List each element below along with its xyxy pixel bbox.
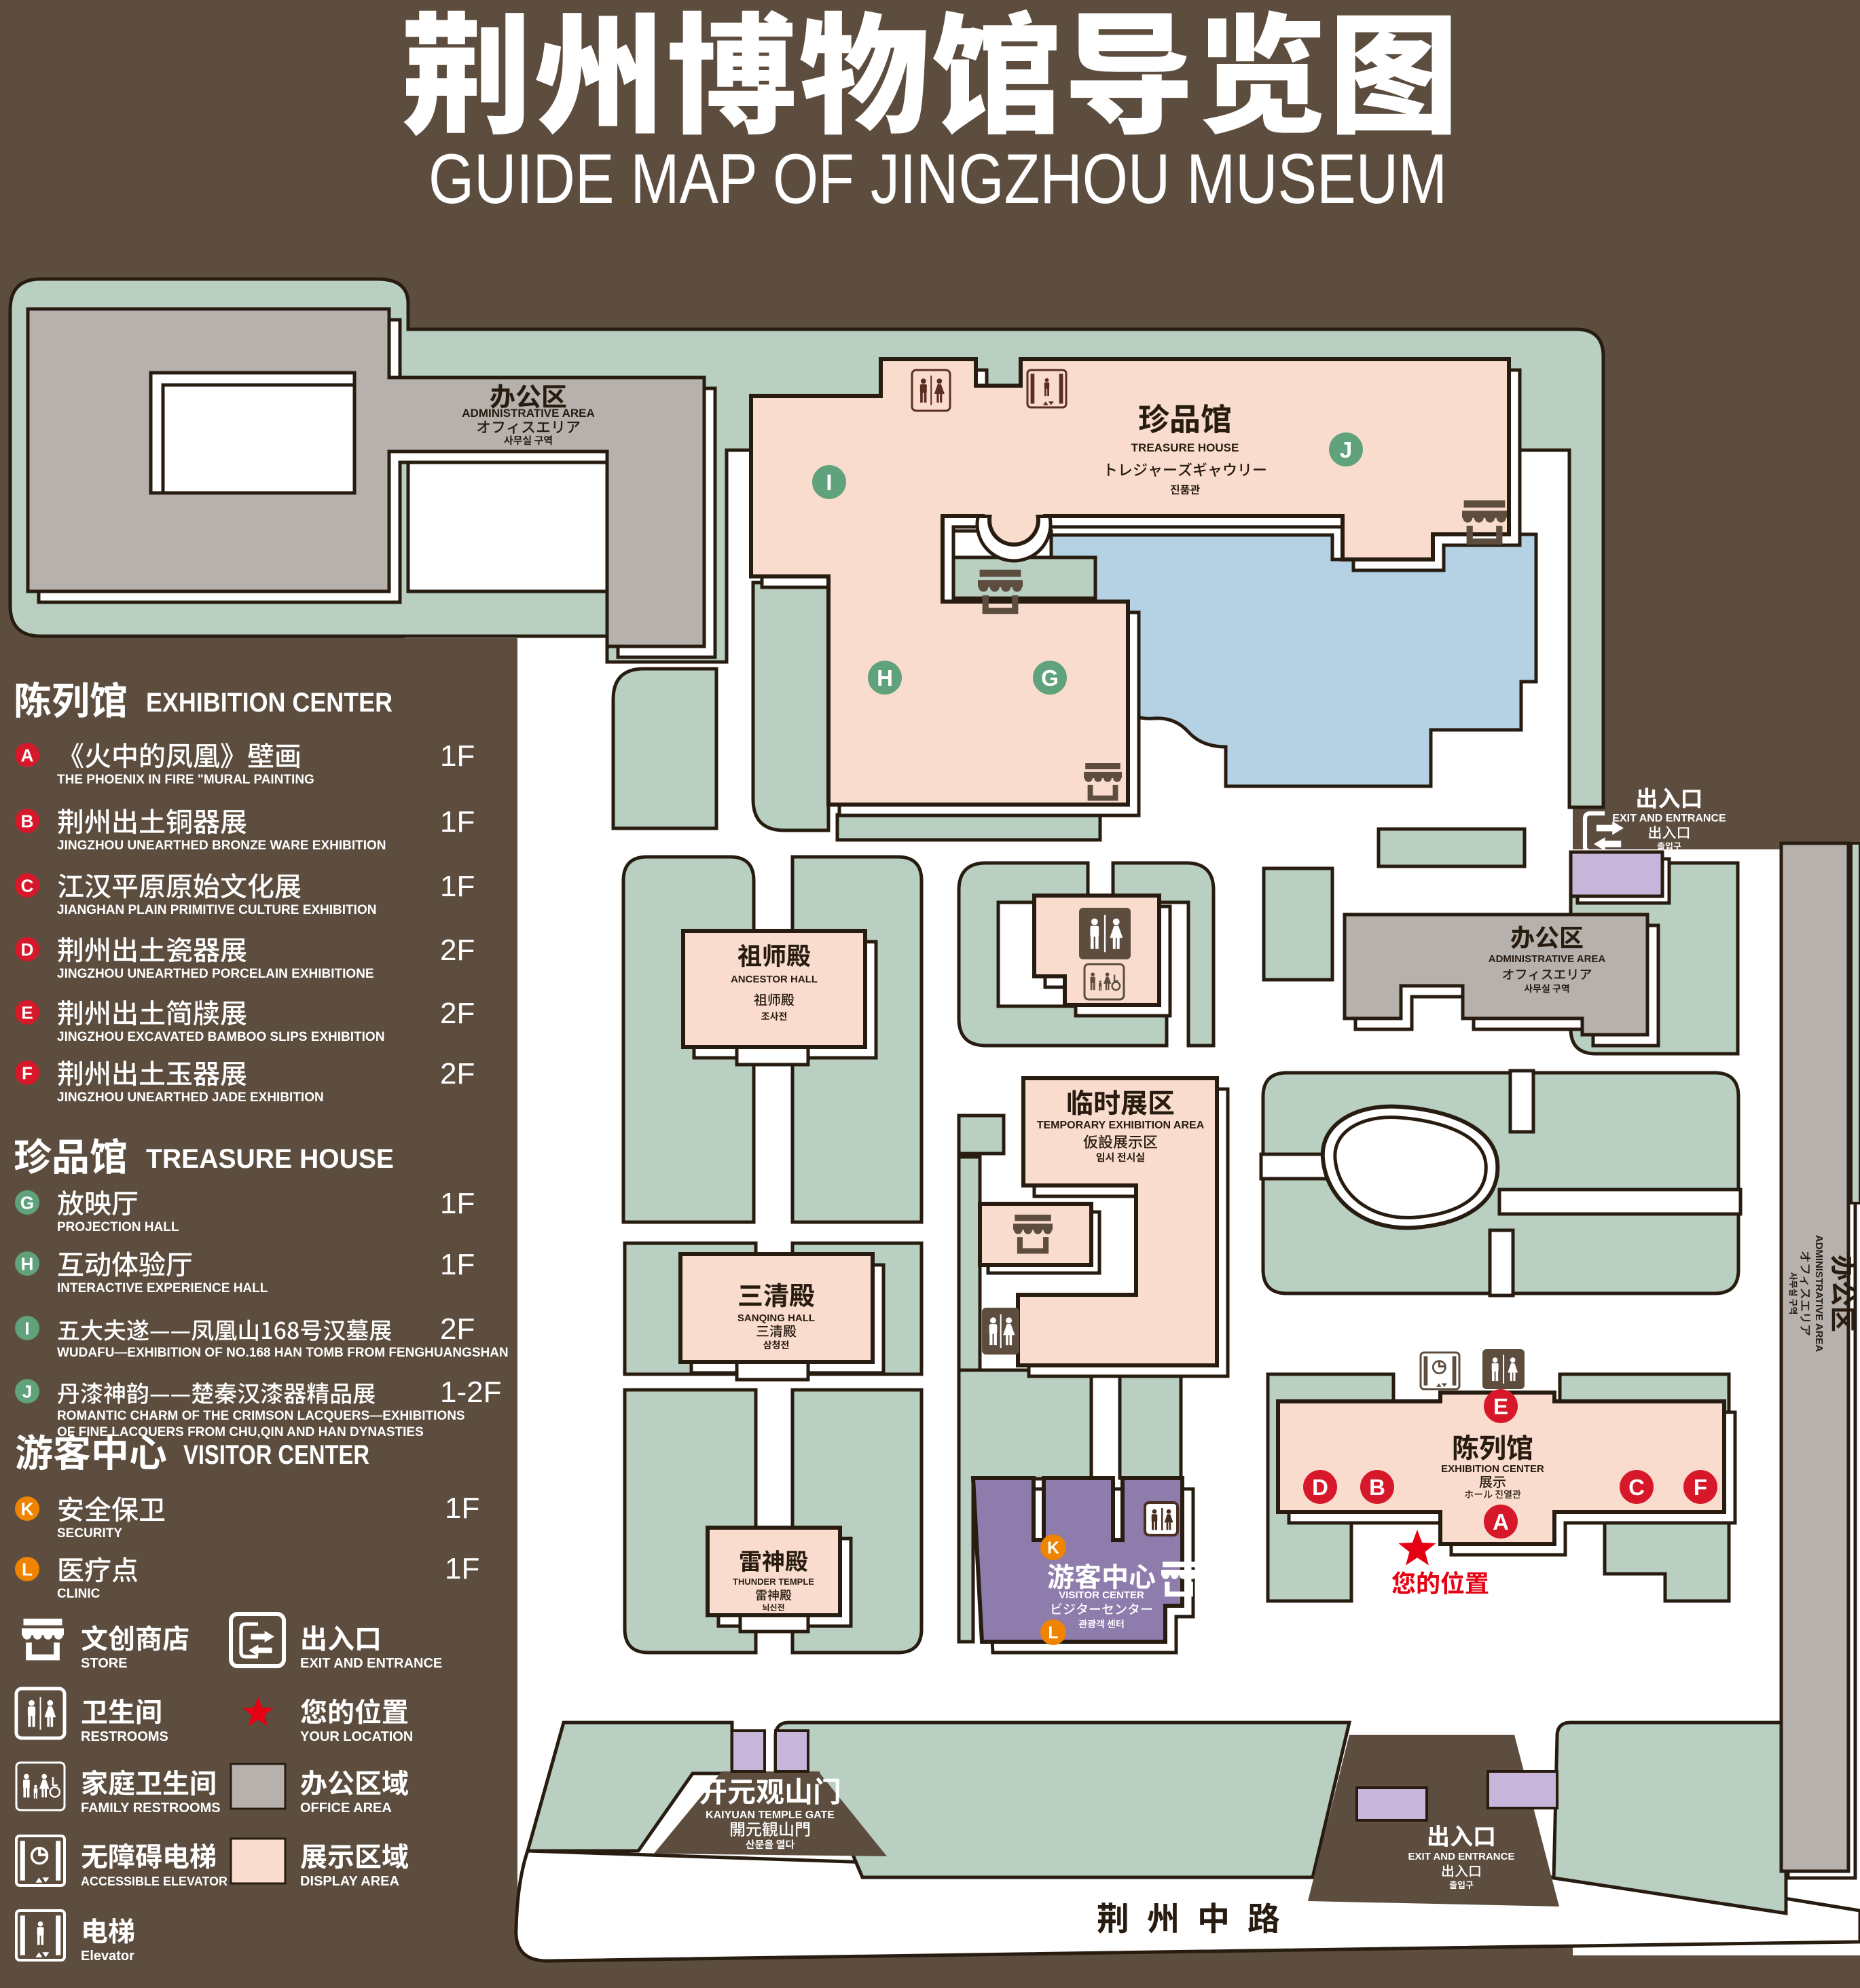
svg-text:ADMINISTRATIVE AREA: ADMINISTRATIVE AREA [1489,953,1606,965]
svg-text:TEMPORARY EXHIBITION AREA: TEMPORARY EXHIBITION AREA [1037,1120,1205,1131]
svg-text:EXHIBITION CENTER: EXHIBITION CENTER [1441,1463,1544,1475]
svg-text:TREASURE HOUSE: TREASURE HOUSE [146,1144,394,1174]
svg-text:JINGZHOU UNEARTHED BRONZE WARE: JINGZHOU UNEARTHED BRONZE WARE EXHIBITIO… [57,839,386,853]
svg-text:THUNDER TEMPLE: THUNDER TEMPLE [733,1577,814,1587]
svg-text:RESTROOMS: RESTROOMS [81,1729,168,1744]
svg-text:C: C [1628,1475,1645,1500]
svg-text:2F: 2F [440,997,475,1030]
svg-text:VISITOR CENTER: VISITOR CENTER [1059,1589,1144,1601]
svg-text:2F: 2F [440,1057,475,1090]
svg-text:H: H [877,665,893,691]
svg-text:1F: 1F [440,1248,475,1281]
svg-text:Elevator: Elevator [81,1949,134,1964]
svg-text:ACCESSIBLE ELEVATOR: ACCESSIBLE ELEVATOR [81,1875,227,1888]
svg-text:1-2F: 1-2F [440,1376,501,1409]
svg-text:1F: 1F [440,870,475,903]
svg-text:E: E [1493,1394,1508,1419]
svg-text:1F: 1F [445,1552,479,1585]
svg-text:D: D [1312,1475,1328,1500]
svg-text:GUIDE MAP OF JINGZHOU MUSEUM: GUIDE MAP OF JINGZHOU MUSEUM [428,140,1447,219]
svg-text:JINGZHOU UNEARTHED PORCELAIN E: JINGZHOU UNEARTHED PORCELAIN EXHIBITIONE [57,967,374,981]
svg-text:G: G [1041,665,1059,691]
svg-text:I: I [826,470,832,495]
svg-text:D: D [21,939,34,959]
svg-text:JINGZHOU EXCAVATED BAMBOO SLIP: JINGZHOU EXCAVATED BAMBOO SLIPS EXHIBITI… [57,1030,384,1044]
svg-text:1F: 1F [440,739,475,773]
svg-text:K: K [21,1498,34,1519]
svg-text:KAIYUAN TEMPLE GATE: KAIYUAN TEMPLE GATE [706,1809,835,1821]
svg-text:ANCESTOR HALL: ANCESTOR HALL [731,974,818,985]
svg-text:G: G [20,1192,34,1213]
svg-text:B: B [1369,1475,1385,1500]
svg-text:SANQING HALL: SANQING HALL [737,1312,815,1324]
svg-text:2F: 2F [440,1312,475,1346]
svg-text:K: K [1047,1539,1059,1558]
svg-text:JIANGHAN PLAIN PRIMITIVE CULTU: JIANGHAN PLAIN PRIMITIVE CULTURE EXHIBIT… [57,903,376,917]
svg-text:C: C [21,875,34,896]
svg-text:THE PHOENIX IN FIRE "MURAL PAI: THE PHOENIX IN FIRE "MURAL PAINTING [57,773,314,787]
svg-text:DISPLAY AREA: DISPLAY AREA [300,1874,399,1889]
svg-text:2F: 2F [440,934,475,967]
svg-text:F: F [1694,1475,1707,1500]
svg-text:EXIT AND ENTRANCE: EXIT AND ENTRANCE [1612,813,1726,824]
svg-text:A: A [21,745,34,765]
svg-text:YOUR LOCATION: YOUR LOCATION [300,1729,413,1744]
svg-text:PROJECTION HALL: PROJECTION HALL [57,1220,179,1234]
svg-text:L: L [1048,1623,1058,1642]
svg-text:EXHIBITION CENTER: EXHIBITION CENTER [146,688,393,718]
svg-text:A: A [1493,1509,1509,1534]
svg-text:L: L [22,1559,33,1579]
svg-text:I: I [24,1318,29,1338]
svg-text:WUDAFU—EXHIBITION OF NO.168 HA: WUDAFU—EXHIBITION OF NO.168 HAN TOMB FRO… [57,1346,509,1360]
svg-text:FAMILY RESTROOMS: FAMILY RESTROOMS [81,1801,221,1816]
svg-text:OFFICE AREA: OFFICE AREA [300,1801,392,1816]
svg-text:JINGZHOU UNEARTHED JADE EXHIBI: JINGZHOU UNEARTHED JADE EXHIBITION [57,1090,324,1105]
svg-text:ROMANTIC CHARM OF THE CRIMSON: ROMANTIC CHARM OF THE CRIMSON LACQUERS—E… [57,1409,465,1423]
svg-text:E: E [21,1002,33,1023]
svg-text:INTERACTIVE EXPERIENCE HALL: INTERACTIVE EXPERIENCE HALL [57,1281,268,1295]
svg-text:1F: 1F [445,1492,479,1525]
svg-text:J: J [1340,437,1352,462]
svg-text:CLINIC: CLINIC [57,1587,101,1601]
svg-text:1F: 1F [440,805,475,839]
svg-text:J: J [22,1381,32,1401]
svg-text:ADMINISTRATIVE AREA: ADMINISTRATIVE AREA [462,407,595,420]
svg-text:ADMINISTRATIVE AREA: ADMINISTRATIVE AREA [1813,1235,1825,1352]
svg-text:B: B [21,811,34,831]
svg-text:EXIT AND ENTRANCE: EXIT AND ENTRANCE [1408,1851,1515,1862]
svg-text:F: F [22,1063,33,1083]
svg-text:H: H [21,1253,34,1274]
svg-text:1F: 1F [440,1187,475,1220]
svg-text:VISITOR CENTER: VISITOR CENTER [183,1440,369,1470]
svg-text:TREASURE HOUSE: TREASURE HOUSE [1131,441,1239,454]
svg-text:SECURITY: SECURITY [57,1526,122,1541]
svg-text:EXIT AND ENTRANCE: EXIT AND ENTRANCE [300,1656,442,1671]
svg-text:STORE: STORE [81,1656,128,1671]
